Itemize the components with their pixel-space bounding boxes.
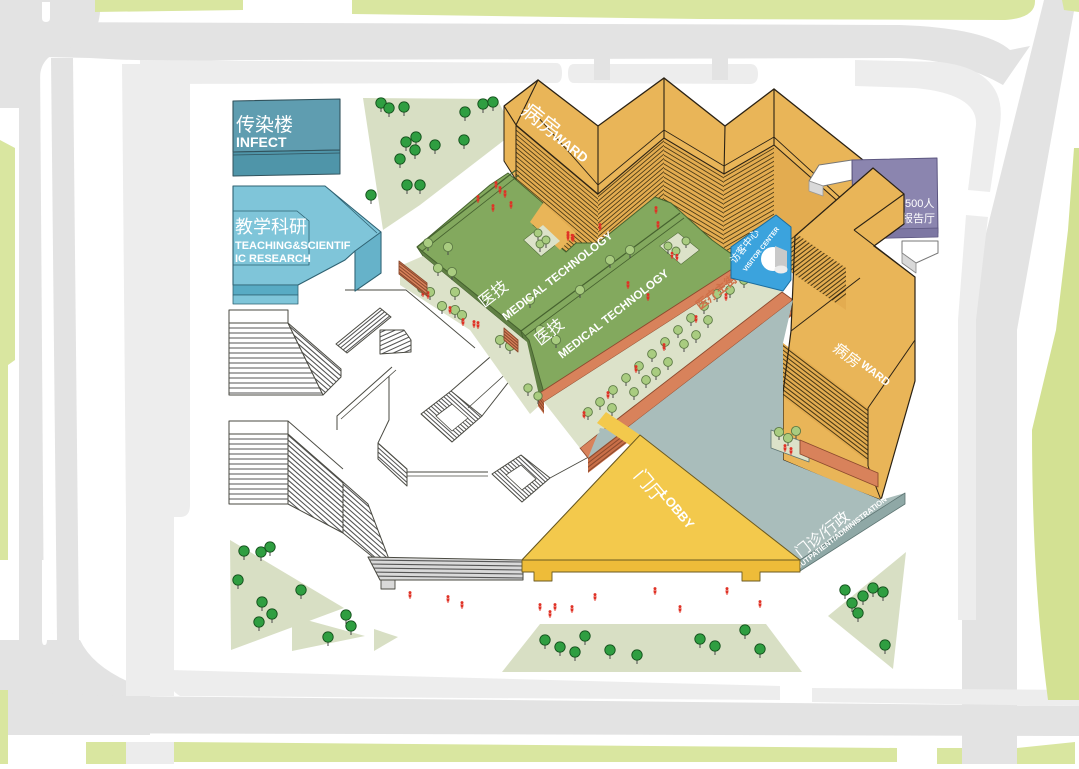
svg-text:IC RESEARCH: IC RESEARCH [235, 253, 311, 265]
svg-text:教学科研: 教学科研 [235, 217, 307, 237]
svg-text:传染楼: 传染楼 [236, 114, 293, 136]
svg-text:报告厅: 报告厅 [902, 211, 935, 225]
svg-text:500人: 500人 [905, 197, 934, 210]
svg-text:INFECT: INFECT [236, 134, 287, 150]
svg-text:TEACHING&SCIENTIF: TEACHING&SCIENTIF [235, 240, 351, 252]
